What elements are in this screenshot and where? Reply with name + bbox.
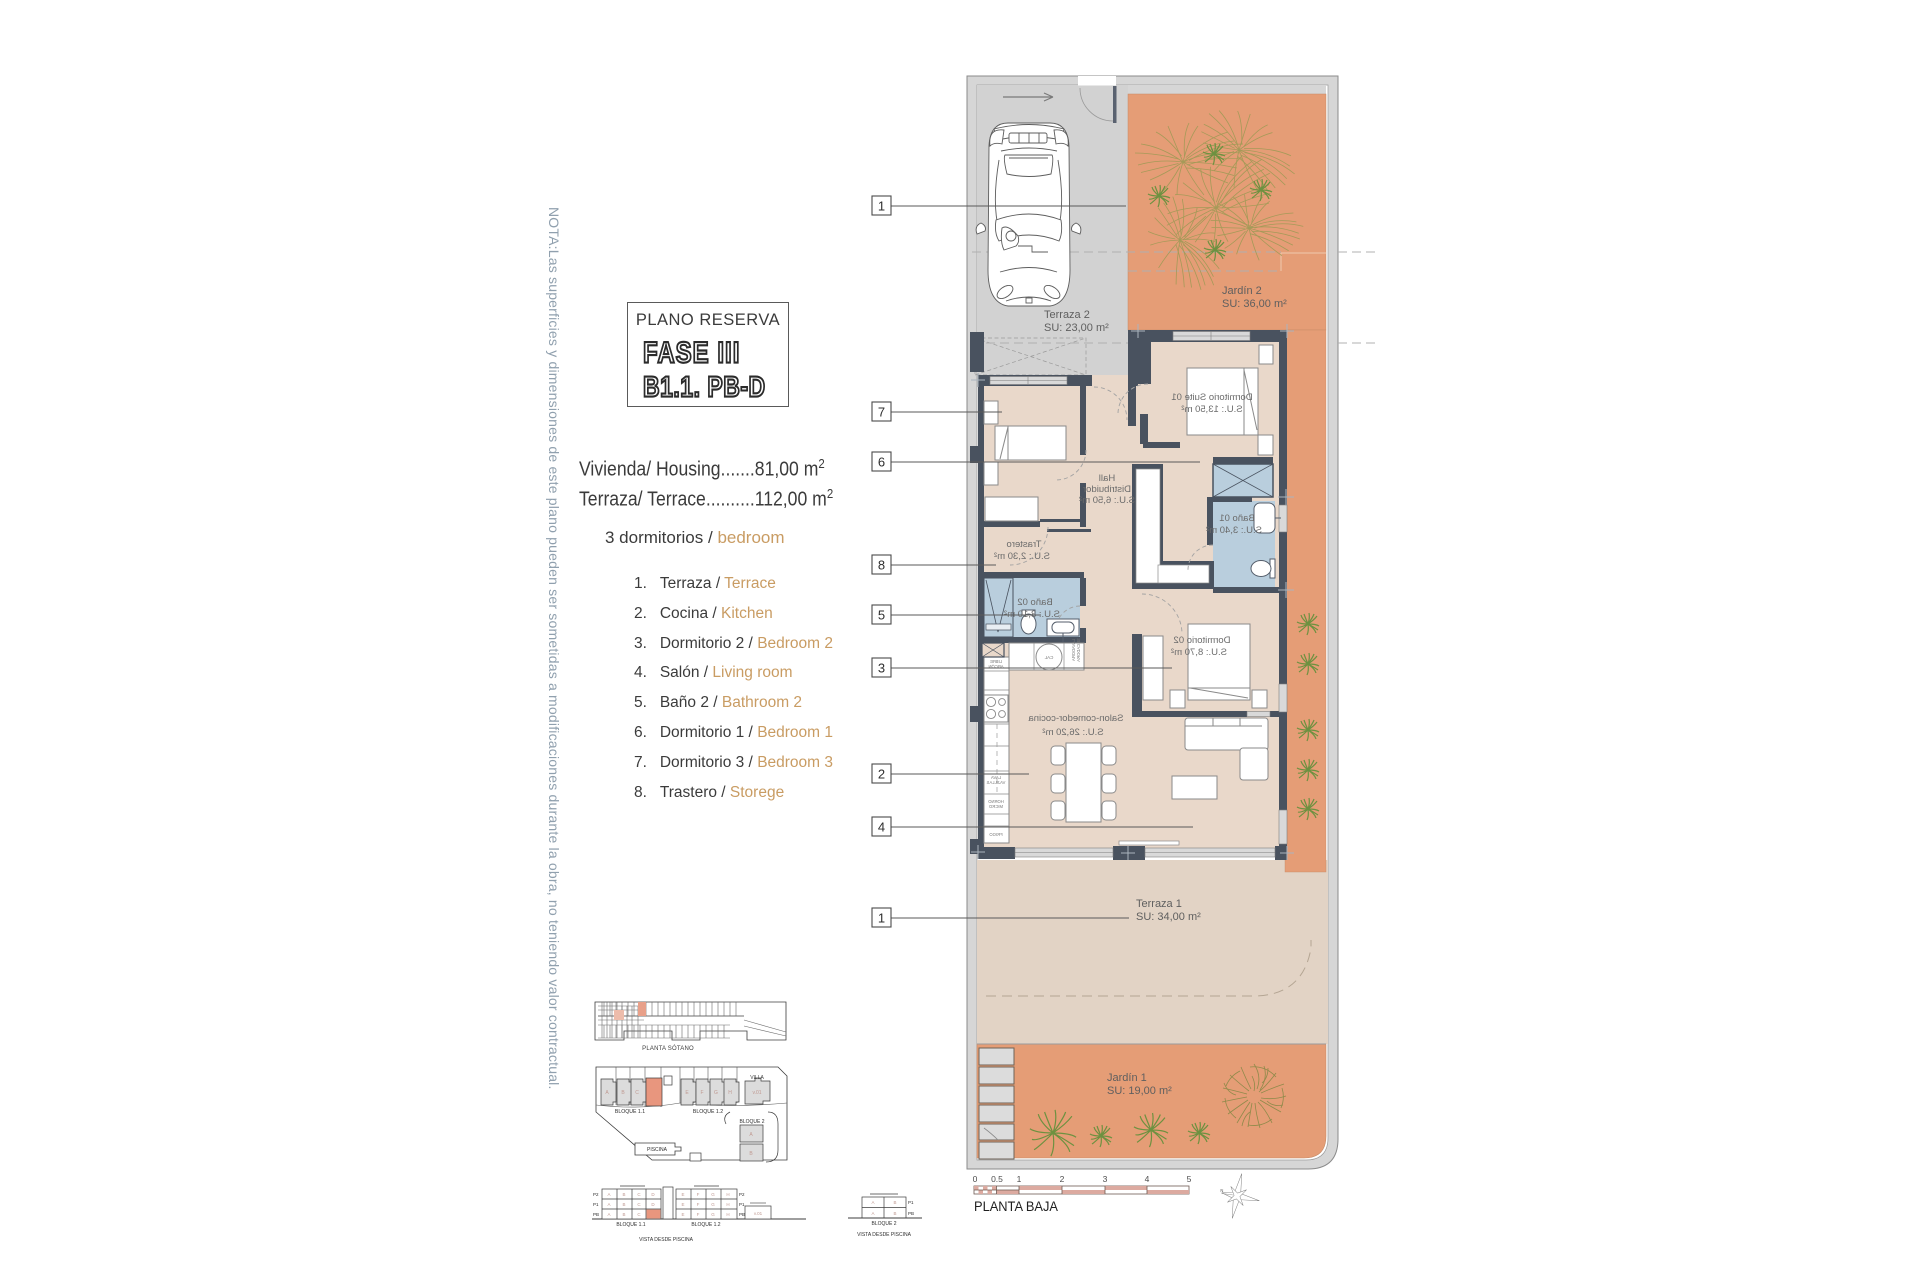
svg-text:B: B [622,1212,625,1217]
svg-text:S.U.: 6,50 m²: S.U.: 6,50 m² [1079,495,1135,506]
svg-text:H: H [726,1192,729,1197]
svg-text:SU: 36,00 m²: SU: 36,00 m² [1222,298,1287,310]
svg-text:G: G [711,1192,715,1197]
svg-text:VAJILLAS: VAJILLAS [986,780,1005,785]
svg-text:S.U.: 26,20 m²: S.U.: 26,20 m² [1042,727,1103,738]
svg-text:F: F [700,1090,703,1096]
svg-text:G: G [714,1090,718,1096]
svg-text:Terraza 1: Terraza 1 [1136,898,1182,910]
svg-text:Baño 01: Baño 01 [1219,513,1254,524]
svg-text:P1: P1 [908,1200,914,1205]
svg-text:4: 4 [878,820,885,835]
svg-text:S.U.: 3,10 m²: S.U.: 3,10 m² [1004,609,1060,620]
svg-text:BLOQUE 2: BLOQUE 2 [871,1221,896,1227]
svg-text:4: 4 [1145,1174,1150,1184]
svg-text:G: G [711,1212,715,1217]
svg-text:E: E [681,1202,684,1207]
svg-text:6: 6 [878,455,885,470]
svg-text:A: A [607,1202,610,1207]
svg-text:BLOQUE 1.2: BLOQUE 1.2 [691,1222,720,1228]
svg-text:Jardín 1: Jardín 1 [1107,1072,1147,1084]
svg-text:MICRO: MICRO [988,804,1003,809]
svg-text:SU: 23,00 m²: SU: 23,00 m² [1044,322,1109,334]
svg-text:1: 1 [878,199,885,214]
svg-text:S.U.: 3,40 m²: S.U.: 3,40 m² [1206,525,1262,536]
svg-text:B: B [893,1200,896,1205]
svg-text:1: 1 [1017,1174,1022,1184]
svg-text:A: A [607,1192,610,1197]
svg-text:N: N [1220,1188,1223,1193]
svg-text:5: 5 [1187,1174,1192,1184]
svg-text:E: E [681,1212,684,1217]
svg-text:0: 0 [973,1174,978,1184]
svg-text:A: A [871,1211,874,1216]
svg-text:H: H [726,1202,729,1207]
svg-text:VISTA DESDE PISCINA: VISTA DESDE PISCINA [857,1232,911,1238]
svg-text:Terraza 2: Terraza 2 [1044,309,1090,321]
svg-text:VILLA: VILLA [750,1075,764,1081]
svg-text:8: 8 [878,558,885,573]
svg-text:PB: PB [739,1212,745,1217]
svg-text:5: 5 [878,608,885,623]
svg-text:SECADORA: SECADORA [1076,638,1081,662]
svg-text:Hall: Hall [1099,473,1115,484]
svg-text:PB: PB [908,1211,914,1216]
svg-text:S.U.: 2,30 m²: S.U.: 2,30 m² [994,551,1050,562]
svg-text:CAL: CAL [1044,655,1053,660]
svg-text:v.01: v.01 [752,1090,761,1096]
svg-text:Baño 02: Baño 02 [1017,597,1052,608]
svg-text:Dormitorio Suite 01: Dormitorio Suite 01 [1171,392,1252,403]
svg-text:BLOQUE 1.2: BLOQUE 1.2 [693,1109,723,1115]
svg-text:H: H [726,1212,729,1217]
svg-text:Salon-comedor-cocina: Salon-comedor-cocina [1028,713,1124,724]
svg-text:3: 3 [1103,1174,1108,1184]
svg-text:2: 2 [878,767,885,782]
svg-text:P2: P2 [739,1192,745,1197]
svg-text:A: A [871,1200,874,1205]
svg-text:F: F [697,1202,700,1207]
svg-text:BLOQUE 1.1: BLOQUE 1.1 [615,1109,645,1115]
svg-text:S.U.: 13,50 m²: S.U.: 13,50 m² [1181,404,1242,415]
svg-text:BLOQUE 2: BLOQUE 2 [739,1119,764,1125]
svg-text:F: F [697,1192,700,1197]
svg-text:v.01: v.01 [754,1211,763,1216]
svg-text:Distribuidor: Distribuidor [1083,484,1131,495]
svg-text:B: B [893,1211,896,1216]
svg-text:P2: P2 [593,1192,599,1197]
svg-text:H: H [728,1090,732,1096]
svg-text:PB: PB [593,1212,599,1217]
svg-text:3: 3 [878,661,885,676]
svg-text:E: E [681,1192,684,1197]
svg-text:Trastero: Trastero [1006,539,1041,550]
svg-text:S.U.: 8,70 m²: S.U.: 8,70 m² [1171,647,1227,658]
svg-text:G: G [711,1202,715,1207]
svg-text:F: F [697,1212,700,1217]
svg-text:7: 7 [878,405,885,420]
svg-text:PISCINA: PISCINA [647,1147,668,1153]
svg-text:PLANTA SÓTANO: PLANTA SÓTANO [642,1045,694,1052]
svg-text:B: B [622,1192,625,1197]
svg-text:2: 2 [1060,1174,1065,1184]
svg-text:1: 1 [878,911,885,926]
svg-text:VISTA DESDE PISCINA: VISTA DESDE PISCINA [639,1237,693,1243]
svg-text:P1: P1 [739,1202,745,1207]
svg-text:P1: P1 [593,1202,599,1207]
svg-text:SU: 34,00 m²: SU: 34,00 m² [1136,911,1201,923]
svg-text:FRIGO: FRIGO [989,832,1003,837]
svg-text:C: C [635,1090,639,1096]
svg-text:Jardín 2: Jardín 2 [1222,285,1262,297]
svg-text:SU: 19,00 m²: SU: 19,00 m² [1107,1085,1172,1097]
svg-text:BLOQUE 1.1: BLOQUE 1.1 [616,1222,645,1228]
svg-text:B: B [622,1202,625,1207]
svg-text:A: A [607,1212,610,1217]
svg-text:Dormitorio 02: Dormitorio 02 [1173,635,1230,646]
svg-text:0.5: 0.5 [991,1174,1003,1184]
svg-text:PLANTA BAJA: PLANTA BAJA [974,1199,1058,1214]
